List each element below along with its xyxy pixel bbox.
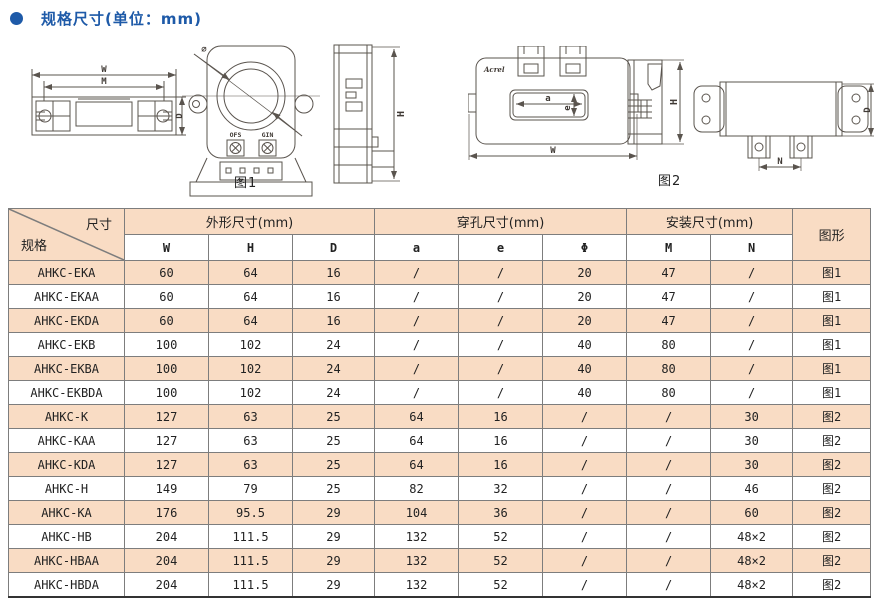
- table-row: AHKC-KDA12763256416//30图2: [9, 453, 871, 477]
- spec-cell: AHKC-K: [9, 405, 125, 429]
- value-cell: 64: [209, 261, 293, 285]
- value-cell: 48×2: [711, 573, 793, 598]
- technical-drawings: W M D: [8, 32, 870, 202]
- value-cell: 111.5: [209, 549, 293, 573]
- value-cell: 图1: [793, 261, 871, 285]
- value-cell: 29: [293, 501, 375, 525]
- spec-cell: AHKC-H: [9, 477, 125, 501]
- value-cell: 48×2: [711, 525, 793, 549]
- table-row: AHKC-H14979258232//46图2: [9, 477, 871, 501]
- value-cell: 16: [459, 405, 543, 429]
- fig1-top-view-drawing: W M D: [20, 65, 188, 143]
- value-cell: 47: [627, 285, 711, 309]
- value-cell: 47: [627, 309, 711, 333]
- value-cell: 40: [543, 333, 627, 357]
- value-cell: 104: [375, 501, 459, 525]
- value-cell: 100: [125, 333, 209, 357]
- value-cell: /: [711, 285, 793, 309]
- value-cell: /: [543, 525, 627, 549]
- value-cell: 127: [125, 429, 209, 453]
- value-cell: 64: [209, 285, 293, 309]
- value-cell: 132: [375, 573, 459, 598]
- value-cell: /: [375, 261, 459, 285]
- value-cell: 25: [293, 477, 375, 501]
- dim-label-h: H: [396, 111, 407, 117]
- corner-header-cell: 尺寸 规格: [9, 209, 125, 261]
- value-cell: /: [459, 285, 543, 309]
- value-cell: /: [375, 285, 459, 309]
- dim-label-e: e: [563, 105, 573, 111]
- spec-table: 尺寸 规格 外形尺寸(mm) 穿孔尺寸(mm) 安装尺寸(mm) 图形 W H …: [8, 208, 871, 598]
- table-row: AHKC-HBDA204111.52913252//48×2图2: [9, 573, 871, 598]
- value-cell: /: [375, 357, 459, 381]
- value-cell: 图1: [793, 381, 871, 405]
- table-row: AHKC-K12763256416//30图2: [9, 405, 871, 429]
- spec-cell: AHKC-KAA: [9, 429, 125, 453]
- value-cell: /: [711, 333, 793, 357]
- bullet-icon: [10, 12, 23, 25]
- value-cell: 64: [375, 405, 459, 429]
- spec-cell: AHKC-EKDA: [9, 309, 125, 333]
- value-cell: 30: [711, 405, 793, 429]
- value-cell: 24: [293, 381, 375, 405]
- value-cell: 图1: [793, 309, 871, 333]
- value-cell: 图1: [793, 357, 871, 381]
- group-header-outline: 外形尺寸(mm): [125, 209, 375, 235]
- col-header-w: W: [125, 235, 209, 261]
- corner-label-size: 尺寸: [86, 214, 112, 233]
- value-cell: 102: [209, 381, 293, 405]
- value-cell: /: [459, 309, 543, 333]
- spec-cell: AHKC-HB: [9, 525, 125, 549]
- value-cell: 132: [375, 549, 459, 573]
- dim-label-a: a: [545, 94, 550, 104]
- value-cell: 16: [293, 309, 375, 333]
- value-cell: 16: [459, 429, 543, 453]
- spec-cell: AHKC-EKAA: [9, 285, 125, 309]
- col-header-h: H: [209, 235, 293, 261]
- value-cell: /: [459, 333, 543, 357]
- value-cell: 111.5: [209, 573, 293, 598]
- col-header-phi: Φ: [543, 235, 627, 261]
- acrel-logo: Acrel: [483, 65, 505, 74]
- value-cell: 176: [125, 501, 209, 525]
- value-cell: 60: [125, 285, 209, 309]
- value-cell: /: [711, 261, 793, 285]
- value-cell: /: [459, 381, 543, 405]
- table-row: AHKC-EKBA10010224//4080/图1: [9, 357, 871, 381]
- value-cell: 图2: [793, 405, 871, 429]
- value-cell: 图2: [793, 501, 871, 525]
- ofs-label: OFS: [230, 131, 242, 139]
- table-row: AHKC-HB204111.52913252//48×2图2: [9, 525, 871, 549]
- value-cell: /: [375, 309, 459, 333]
- value-cell: 111.5: [209, 525, 293, 549]
- value-cell: 24: [293, 357, 375, 381]
- value-cell: 47: [627, 261, 711, 285]
- value-cell: 63: [209, 453, 293, 477]
- value-cell: 36: [459, 501, 543, 525]
- table-row: AHKC-HBAA204111.52913252//48×2图2: [9, 549, 871, 573]
- value-cell: 40: [543, 381, 627, 405]
- value-cell: 127: [125, 405, 209, 429]
- fig1-side-view-drawing: H: [326, 41, 418, 186]
- spec-cell: AHKC-HBAA: [9, 549, 125, 573]
- value-cell: 95.5: [209, 501, 293, 525]
- value-cell: /: [543, 477, 627, 501]
- table-row: AHKC-EKAA606416//2047/图1: [9, 285, 871, 309]
- value-cell: 63: [209, 429, 293, 453]
- value-cell: 52: [459, 549, 543, 573]
- value-cell: 102: [209, 357, 293, 381]
- value-cell: /: [627, 453, 711, 477]
- spec-cell: AHKC-KDA: [9, 453, 125, 477]
- dim-label-n: N: [777, 157, 782, 167]
- dim-label-h2: H: [669, 99, 680, 105]
- value-cell: 132: [375, 525, 459, 549]
- col-header-n: N: [711, 235, 793, 261]
- table-row: AHKC-KAA12763256416//30图2: [9, 429, 871, 453]
- value-cell: 20: [543, 309, 627, 333]
- value-cell: 图2: [793, 549, 871, 573]
- value-cell: /: [627, 429, 711, 453]
- value-cell: /: [711, 309, 793, 333]
- value-cell: 20: [543, 261, 627, 285]
- value-cell: /: [459, 357, 543, 381]
- col-header-a: a: [375, 235, 459, 261]
- gin-label: GIN: [262, 131, 274, 139]
- table-row: AHKC-EKBDA10010224//4080/图1: [9, 381, 871, 405]
- value-cell: /: [543, 501, 627, 525]
- value-cell: 80: [627, 333, 711, 357]
- value-cell: 63: [209, 405, 293, 429]
- fig2-caption: 图2: [658, 170, 681, 189]
- page-title: 规格尺寸(单位：mm): [41, 8, 202, 29]
- value-cell: 52: [459, 573, 543, 598]
- value-cell: 30: [711, 429, 793, 453]
- value-cell: /: [627, 477, 711, 501]
- fig1-caption: 图1: [234, 172, 257, 191]
- value-cell: /: [627, 501, 711, 525]
- value-cell: /: [375, 381, 459, 405]
- section-header: 规格尺寸(单位：mm): [8, 6, 870, 30]
- col-header-m: M: [627, 235, 711, 261]
- value-cell: 30: [711, 453, 793, 477]
- group-header-hole: 穿孔尺寸(mm): [375, 209, 627, 235]
- dim-label-phi: ∅: [201, 45, 207, 55]
- value-cell: 204: [125, 525, 209, 549]
- spec-cell: AHKC-HBDA: [9, 573, 125, 598]
- value-cell: 29: [293, 573, 375, 598]
- value-cell: /: [543, 405, 627, 429]
- value-cell: 图1: [793, 285, 871, 309]
- figure-column-header: 图形: [793, 209, 871, 261]
- dim-label-d2: D: [863, 107, 873, 113]
- spec-cell: AHKC-KA: [9, 501, 125, 525]
- value-cell: 60: [125, 261, 209, 285]
- value-cell: /: [543, 453, 627, 477]
- value-cell: 64: [375, 453, 459, 477]
- dim-label-w: W: [101, 65, 107, 75]
- value-cell: 48×2: [711, 549, 793, 573]
- fig2-top-view-drawing: N D: [692, 72, 878, 176]
- value-cell: 64: [209, 309, 293, 333]
- value-cell: 20: [543, 285, 627, 309]
- value-cell: /: [375, 333, 459, 357]
- value-cell: 52: [459, 525, 543, 549]
- value-cell: 80: [627, 357, 711, 381]
- fig2-front-view-drawing: Acrel a e W: [468, 46, 640, 168]
- table-row: AHKC-EKDA606416//2047/图1: [9, 309, 871, 333]
- value-cell: /: [627, 549, 711, 573]
- fig2-side-view-drawing: H: [622, 56, 700, 148]
- col-header-e: e: [459, 235, 543, 261]
- corner-label-spec: 规格: [21, 235, 47, 254]
- value-cell: 29: [293, 525, 375, 549]
- table-body: AHKC-EKA606416//2047/图1AHKC-EKAA606416//…: [9, 261, 871, 598]
- value-cell: /: [627, 405, 711, 429]
- value-cell: 40: [543, 357, 627, 381]
- value-cell: 图2: [793, 573, 871, 598]
- value-cell: 149: [125, 477, 209, 501]
- table-row: AHKC-EKA606416//2047/图1: [9, 261, 871, 285]
- value-cell: 64: [375, 429, 459, 453]
- table-row: AHKC-KA17695.52910436//60图2: [9, 501, 871, 525]
- group-header-mounting: 安装尺寸(mm): [627, 209, 793, 235]
- dim-label-w2: W: [550, 146, 556, 156]
- value-cell: 102: [209, 333, 293, 357]
- page: 规格尺寸(单位：mm): [0, 0, 878, 598]
- spec-cell: AHKC-EKBDA: [9, 381, 125, 405]
- value-cell: 80: [627, 381, 711, 405]
- col-header-d: D: [293, 235, 375, 261]
- value-cell: /: [627, 525, 711, 549]
- value-cell: 25: [293, 453, 375, 477]
- value-cell: 16: [459, 453, 543, 477]
- value-cell: 图2: [793, 525, 871, 549]
- value-cell: 60: [711, 501, 793, 525]
- value-cell: 29: [293, 549, 375, 573]
- value-cell: 79: [209, 477, 293, 501]
- value-cell: 127: [125, 453, 209, 477]
- value-cell: /: [627, 573, 711, 598]
- value-cell: 16: [293, 285, 375, 309]
- value-cell: /: [459, 261, 543, 285]
- spec-cell: AHKC-EKBA: [9, 357, 125, 381]
- value-cell: 图2: [793, 477, 871, 501]
- value-cell: 图1: [793, 333, 871, 357]
- value-cell: /: [543, 429, 627, 453]
- value-cell: 204: [125, 549, 209, 573]
- value-cell: 32: [459, 477, 543, 501]
- dim-label-m: M: [101, 77, 107, 87]
- value-cell: 46: [711, 477, 793, 501]
- spec-cell: AHKC-EKA: [9, 261, 125, 285]
- value-cell: 100: [125, 381, 209, 405]
- value-cell: 25: [293, 405, 375, 429]
- value-cell: 24: [293, 333, 375, 357]
- value-cell: 82: [375, 477, 459, 501]
- spec-cell: AHKC-EKB: [9, 333, 125, 357]
- value-cell: /: [711, 357, 793, 381]
- value-cell: /: [543, 549, 627, 573]
- value-cell: /: [543, 573, 627, 598]
- value-cell: 100: [125, 357, 209, 381]
- value-cell: 204: [125, 573, 209, 598]
- value-cell: 图2: [793, 453, 871, 477]
- value-cell: 16: [293, 261, 375, 285]
- value-cell: 60: [125, 309, 209, 333]
- table-row: AHKC-EKB10010224//4080/图1: [9, 333, 871, 357]
- value-cell: 25: [293, 429, 375, 453]
- value-cell: /: [711, 381, 793, 405]
- value-cell: 图2: [793, 429, 871, 453]
